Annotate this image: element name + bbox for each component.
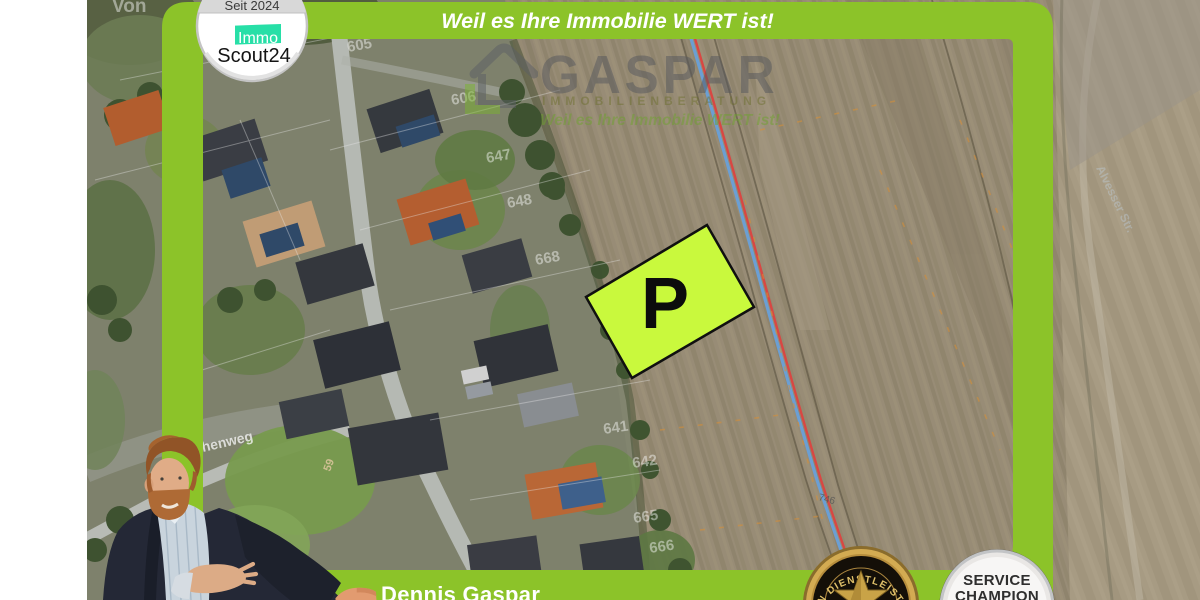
svg-text:SERVICE: SERVICE xyxy=(963,572,1031,589)
svg-text:CHAMPION: CHAMPION xyxy=(955,588,1039,600)
svg-text:Scout24: Scout24 xyxy=(217,45,290,67)
svg-text:Seit 2024: Seit 2024 xyxy=(225,0,280,13)
